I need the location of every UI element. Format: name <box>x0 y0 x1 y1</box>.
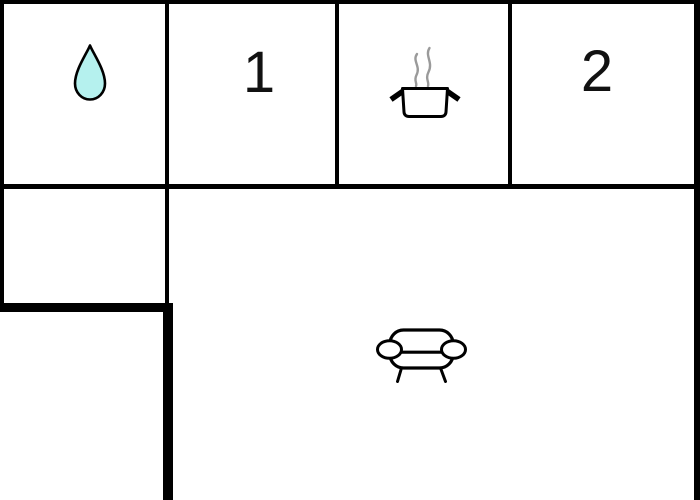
cooking-pot-icon <box>387 42 463 122</box>
wall-step-bottom <box>0 303 173 312</box>
sofa-armrest-right <box>442 341 466 359</box>
wall-step-left <box>163 303 173 500</box>
pot-handle-right <box>448 92 460 100</box>
wall-middle-horizontal <box>0 184 700 189</box>
sofa-armrest-left <box>378 341 402 359</box>
room-2-label: 2 <box>506 43 688 101</box>
wall-outer-top <box>0 0 700 4</box>
pot-handle-left <box>391 92 403 100</box>
wall-outer-left <box>0 0 4 312</box>
sofa-icon <box>374 325 469 383</box>
steam-line-left <box>415 54 417 86</box>
steam-line-right <box>427 48 430 86</box>
wall-bathroom-room1-divider <box>165 0 169 308</box>
sofa-leg-left <box>398 368 402 382</box>
water-drop-shape <box>75 46 105 100</box>
pot-body <box>403 89 448 117</box>
wall-outer-right <box>694 0 700 500</box>
floor-plan: 1 2 <box>0 0 700 500</box>
room-1-label: 1 <box>176 44 342 102</box>
sofa-leg-right <box>441 368 446 382</box>
water-drop-icon <box>71 43 109 103</box>
